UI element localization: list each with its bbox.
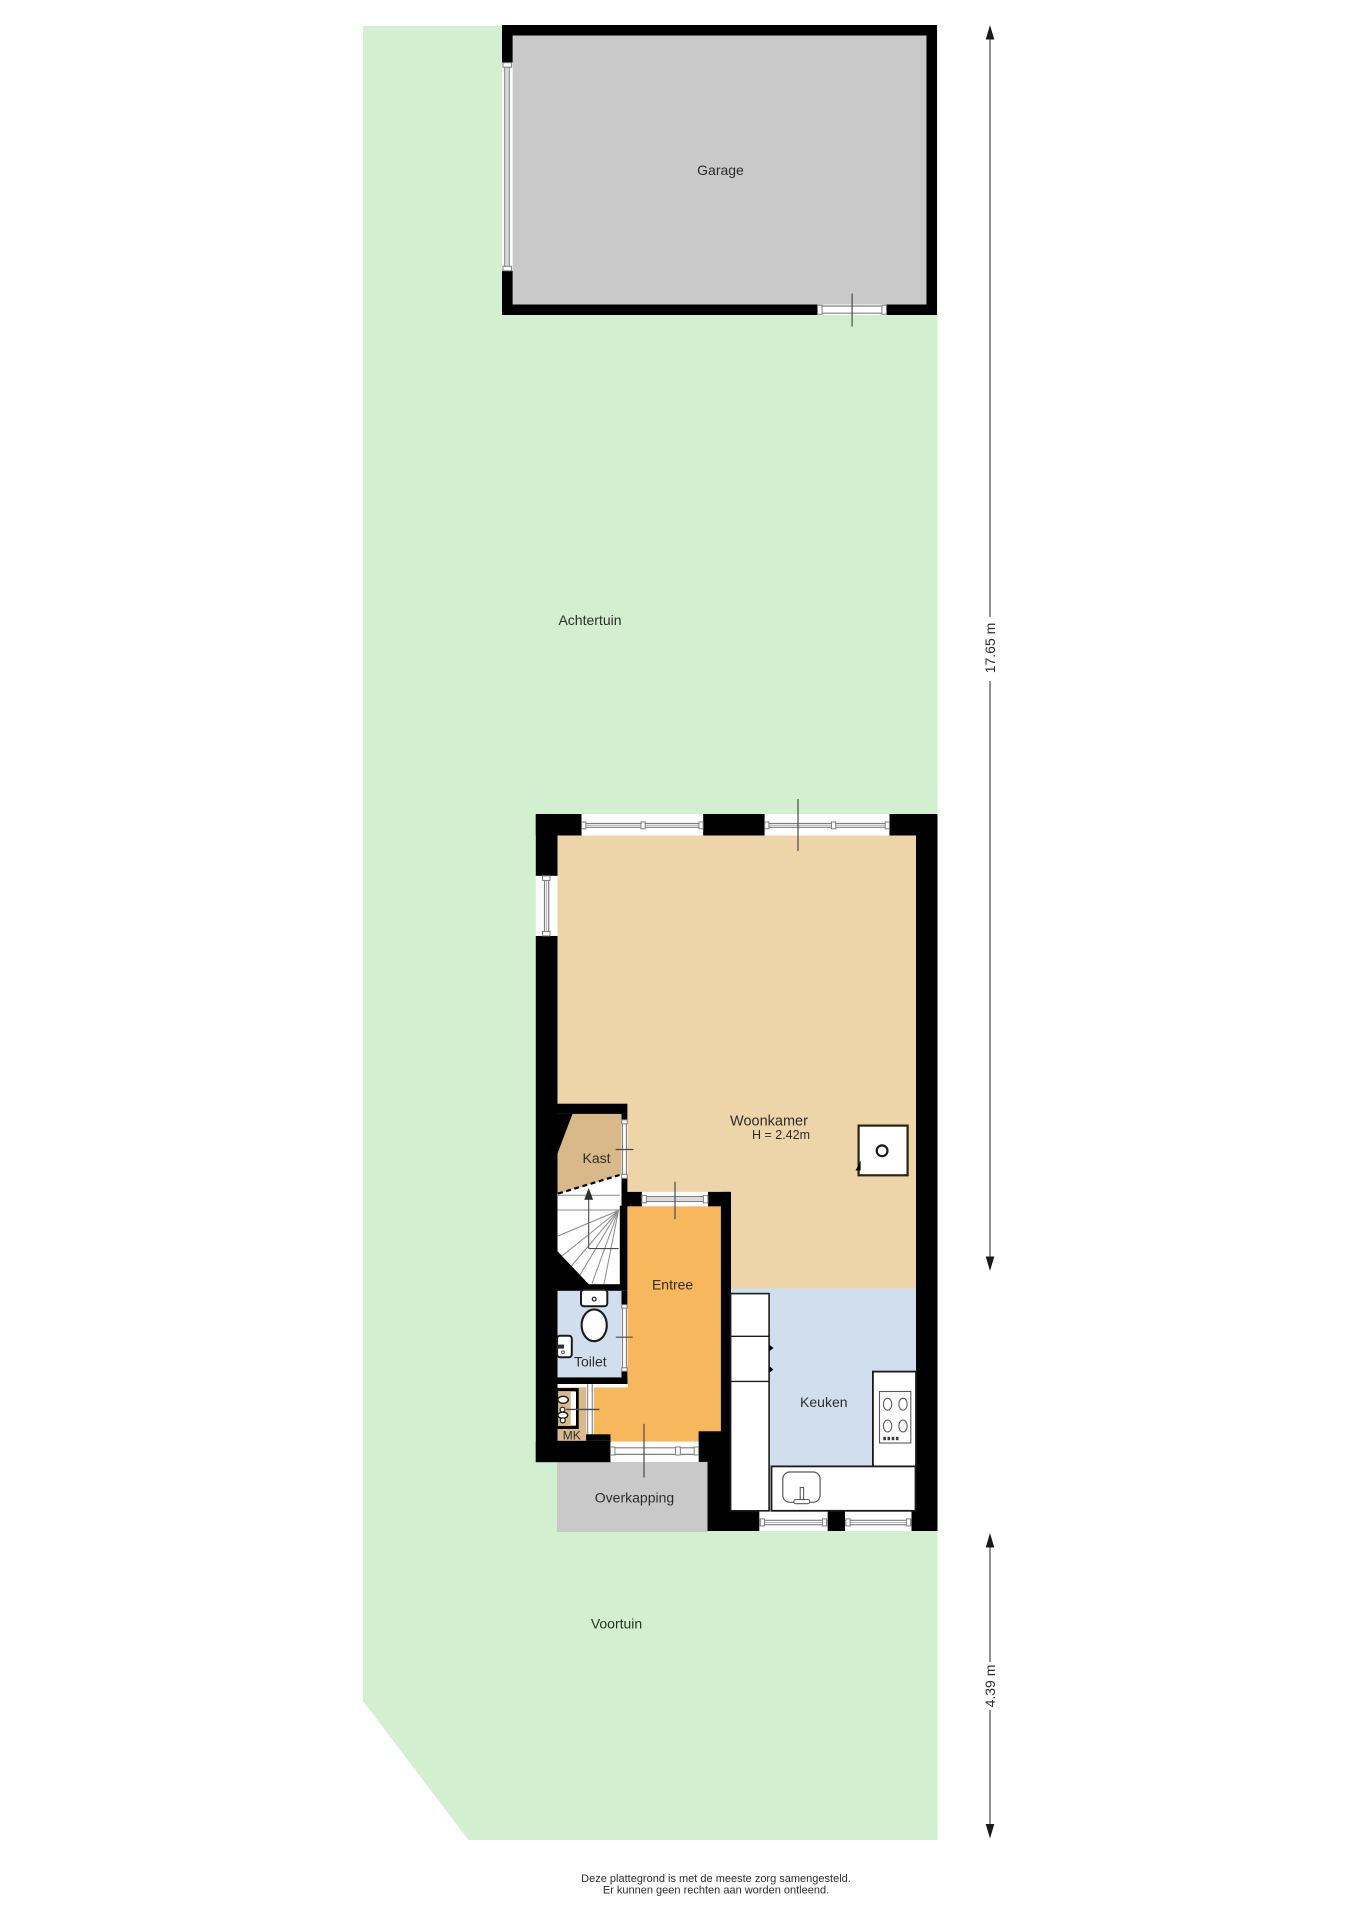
svg-text:Keuken: Keuken — [800, 1394, 847, 1410]
svg-text:17.65 m: 17.65 m — [982, 623, 998, 674]
svg-text:Kast: Kast — [582, 1150, 610, 1166]
svg-text:Overkapping: Overkapping — [595, 1489, 674, 1505]
svg-text:Er kunnen geen rechten aan wor: Er kunnen geen rechten aan worden ontlee… — [603, 1885, 829, 1897]
svg-text:Toilet: Toilet — [574, 1353, 607, 1369]
svg-text:Deze plattegrond is met de mee: Deze plattegrond is met de meeste zorg s… — [581, 1873, 851, 1885]
svg-text:H = 2.42m: H = 2.42m — [752, 1128, 810, 1142]
svg-text:Achtertuin: Achtertuin — [558, 612, 621, 628]
svg-text:Garage: Garage — [697, 162, 744, 178]
svg-text:Voortuin: Voortuin — [591, 1616, 642, 1632]
svg-text:MK: MK — [563, 1429, 581, 1443]
svg-text:Entree: Entree — [652, 1276, 693, 1292]
svg-text:4.39 m: 4.39 m — [982, 1665, 998, 1708]
